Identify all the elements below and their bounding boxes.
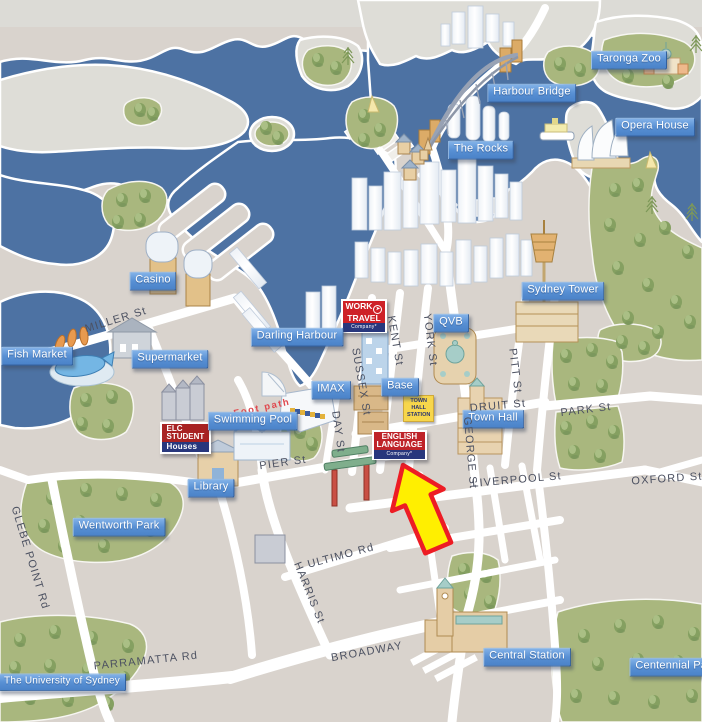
place-label-the-rocks: The Rocks (448, 141, 514, 160)
place-label-harbour-bridge: Harbour Bridge (487, 84, 576, 103)
place-label-opera-house: Opera House (615, 118, 695, 137)
street-label-kent-st: KENT St (385, 315, 406, 367)
elc-line2: STUDENT (167, 432, 205, 441)
place-label-university-of-sydney: The University of Sydney (0, 673, 126, 691)
work-travel-company-strip: Company* (343, 323, 386, 332)
street-label-oxford-st: OXFORD St (631, 471, 702, 488)
work-travel-company-sign: WORK➤ TRAVEL Company* (341, 299, 387, 333)
place-label-qvb: QVB (433, 314, 469, 333)
place-label-imax: IMAX (311, 381, 351, 400)
english-language-company-sign: ENGLISH LANGUAGE Company* (372, 430, 427, 460)
place-label-darling-harbour: Darling Harbour (251, 328, 344, 347)
street-label-pier-st: PIER St (259, 454, 308, 472)
place-label-library: Library (187, 479, 234, 498)
place-label-sydney-tower: Sydney Tower (521, 282, 604, 301)
place-label-taronga-zoo: Taronga Zoo (591, 51, 667, 70)
place-label-wentworth-park: Wentworth Park (73, 518, 166, 537)
street-label-pitt-st: PITT St (506, 348, 523, 395)
place-label-central-station: Central Station (483, 648, 571, 667)
street-label-sussex-st: SUSSEX St (349, 347, 373, 417)
street-label-parramatta-rd: PARRAMATTA Rd (93, 650, 199, 673)
sydney-map: Foot path WORK➤ TRAVEL Company* ENGLISH … (0, 0, 702, 722)
ths-line3: STATION (407, 412, 430, 418)
english-language-sign-top: ENGLISH LANGUAGE (374, 432, 426, 451)
english-language-line1: ENGLISH (382, 432, 418, 441)
street-label-liverpool-st: LIVERPOOL St (472, 470, 563, 490)
english-language-company-strip: Company* (374, 450, 426, 459)
place-label-centennial-park: Centennial Park (629, 658, 702, 677)
street-label-broadway: BROADWAY (330, 640, 404, 664)
street-label-glebe-point-rd: GLEBE POINT Rd (9, 505, 52, 611)
town-hall-station-sign: TOWN HALL STATION (403, 395, 434, 422)
place-label-swimming-pool: Swimming Pool (208, 412, 298, 431)
elc-houses-strip: Houses (162, 442, 210, 452)
elc-line1: ELC (167, 424, 183, 433)
place-label-casino: Casino (129, 272, 176, 291)
street-label-park-st: PARK St (560, 401, 612, 419)
place-label-fish-market: Fish Market (1, 347, 73, 366)
elc-student-sign-top: ELC STUDENT (162, 424, 210, 443)
ths-line2: HALL (411, 405, 426, 411)
work-travel-line1: WORK (346, 301, 373, 311)
place-label-supermarket: Supermarket (131, 350, 208, 369)
place-label-base: Base (381, 378, 419, 397)
ths-line1: TOWN (410, 398, 427, 404)
street-label-miller-st: MILLER St (84, 305, 149, 335)
street-label-day-st: DAY St (329, 410, 347, 454)
work-travel-line2: TRAVEL (347, 313, 380, 323)
elc-student-houses-sign: ELC STUDENT Houses (160, 422, 211, 454)
english-language-line2: LANGUAGE (377, 440, 423, 449)
map-labels: Foot path WORK➤ TRAVEL Company* ENGLISH … (0, 0, 702, 722)
work-travel-sign-top: WORK➤ TRAVEL (343, 301, 386, 324)
street-label-ultimo-rd: ULTIMO Rd (306, 541, 375, 570)
